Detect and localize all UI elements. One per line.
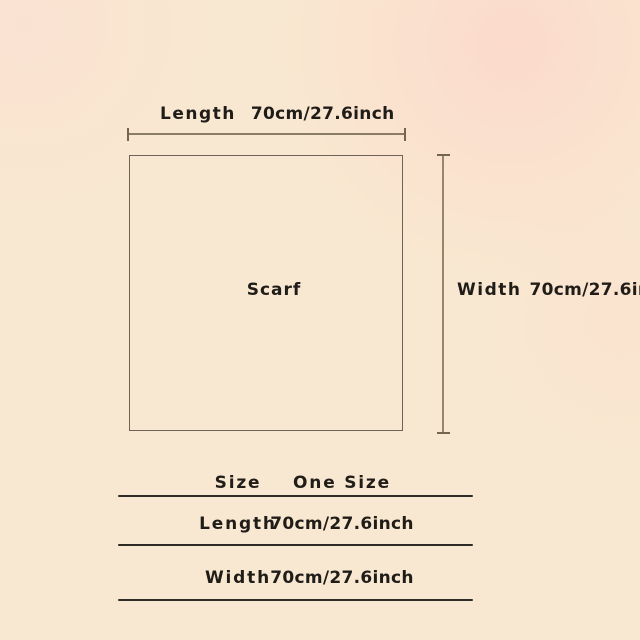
top-measurement-label: Length 70cm/27.6inch [160,104,395,124]
width-dimension-value: 70cm/27.6inch [529,280,640,300]
horizontal-measure-line [127,133,406,135]
length-dimension-value: 70cm/27.6inch [251,104,395,124]
table-row-length-label: Length [199,514,277,534]
size-table-header-one-size: One Size [293,473,391,493]
table-divider [118,495,473,497]
table-divider [118,544,473,546]
scarf-outline: Scarf [129,155,403,431]
vertical-measure-line [442,154,444,434]
length-dimension-name: Length [160,104,236,124]
size-table-header-size: Size [215,473,262,493]
size-chart-canvas: Length 70cm/27.6inch Scarf Width 70cm/27… [0,0,640,640]
size-table: Size One Size Length 70cm/27.6inch Width… [118,470,473,604]
table-row-width-value: 70cm/27.6inch [270,568,414,588]
scarf-label: Scarf [247,280,302,300]
right-measurement-label: Width 70cm/27.6inch [457,280,640,300]
width-dimension-name: Width [457,280,521,300]
table-row-width-label: Width [205,568,271,588]
table-divider [118,599,473,601]
table-row-length-value: 70cm/27.6inch [270,514,414,534]
